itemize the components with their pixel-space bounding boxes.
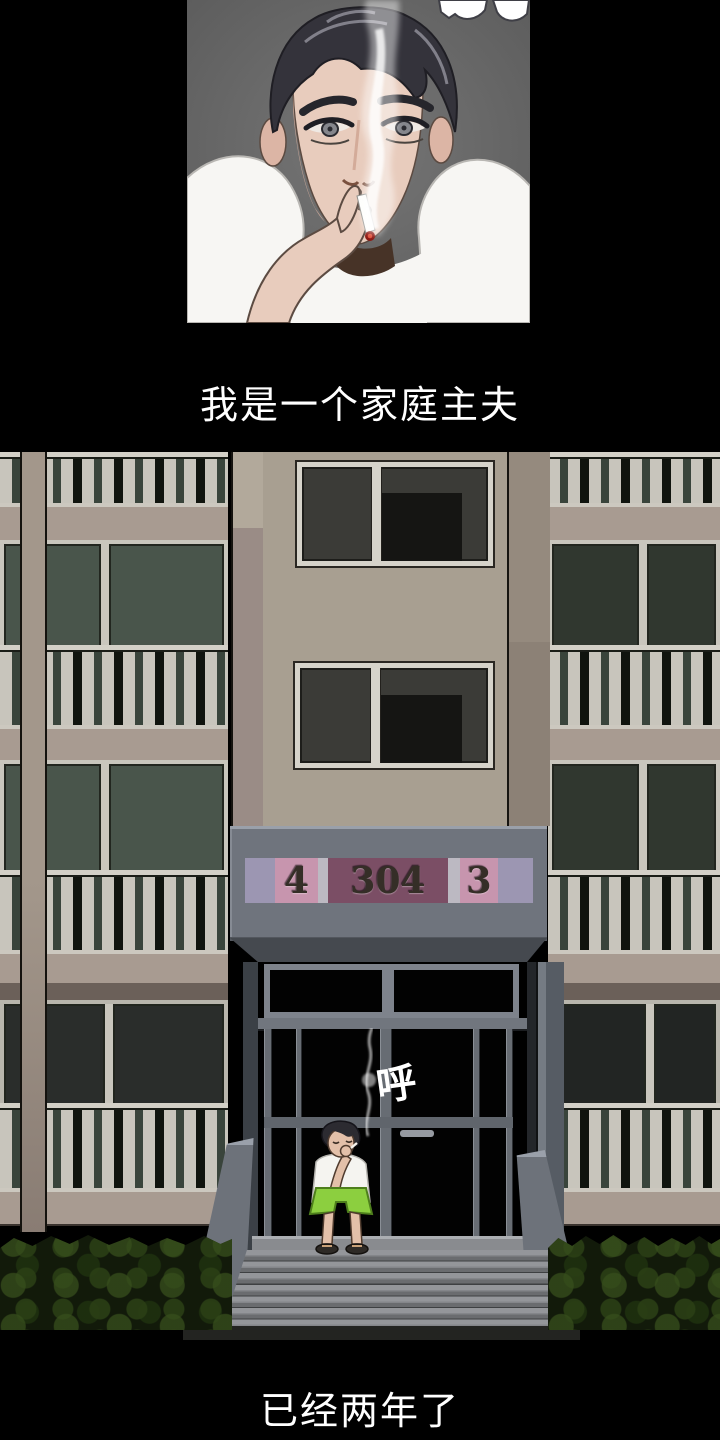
balcony-railing [548,645,720,735]
shirt-right-shoulder [418,160,530,323]
narration-caption-top: 我是一个家庭主夫 [0,386,720,428]
hand-at-mouth [341,1146,352,1157]
left-shin [350,1212,362,1244]
sign-unit-left: 4 [275,858,318,903]
portrait-panel [187,0,530,323]
narration-caption-bottom: 已经两年了 [0,1392,720,1434]
bushes-left [0,1230,232,1330]
sign-lavender-segment [245,858,275,903]
door-handle [400,1130,434,1137]
stairwell-right-edge [507,452,550,826]
sign-digit-center: 304 [350,860,425,902]
canopy-underside [230,938,547,962]
building-right-unit [548,450,720,1340]
sign-digit-left: 4 [284,860,309,902]
building-number-sign: 4 304 3 [245,858,533,903]
right-ear [429,117,453,163]
stairwell-window-upper [297,462,493,566]
smoking-man-portrait [187,0,530,323]
apartment-building-panel: 4 304 3 [0,450,720,1340]
sign-lavender-segment [498,858,533,903]
green-shorts [310,1188,372,1214]
porch-railing [548,1103,720,1198]
entrance-transom-window [264,964,519,1018]
facade-pillar [20,452,47,1232]
ground-strip [183,1326,580,1340]
porch-base-band [548,1188,720,1226]
comic-page: 我是一个家庭主夫 [0,0,720,1440]
right-shin [322,1212,334,1244]
stairwell-window-lower [295,663,493,768]
stairwell-left-edge [231,452,267,826]
entrance-steps [222,1250,578,1330]
man-sitting-on-steps [296,1118,388,1258]
ground-floor-window [548,1000,720,1111]
sign-address: 304 [328,858,448,903]
balcony-railing [548,870,720,960]
sign-unit-right: 3 [460,858,498,903]
balcony-window [548,760,720,878]
balcony-window [548,540,720,653]
sign-digit-right: 3 [466,860,491,902]
bushes-right [548,1230,720,1330]
